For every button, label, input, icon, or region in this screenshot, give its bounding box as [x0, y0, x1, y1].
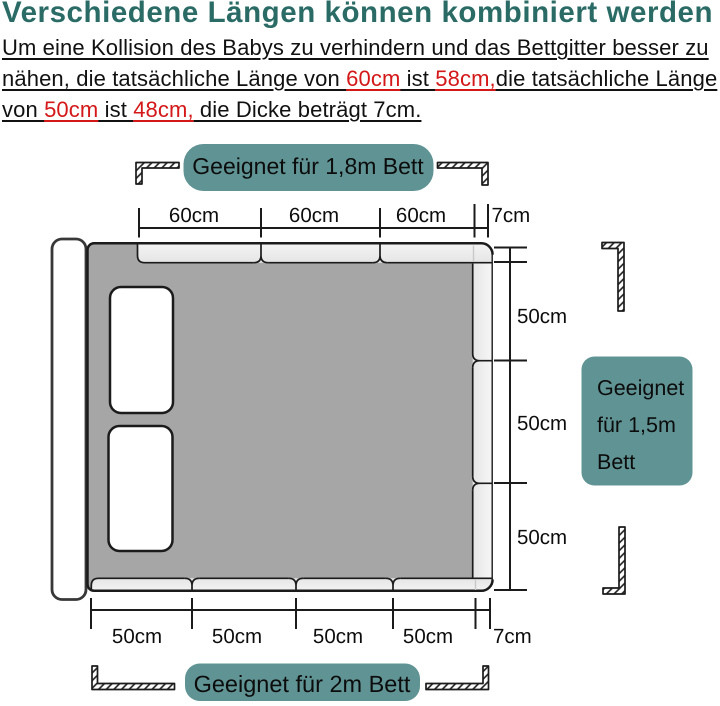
svg-text:50cm: 50cm	[212, 625, 262, 648]
svg-text:50cm: 50cm	[112, 625, 162, 648]
svg-text:50cm: 50cm	[517, 412, 567, 435]
svg-text:7cm: 7cm	[492, 204, 531, 227]
svg-text:60cm: 60cm	[169, 204, 219, 227]
svg-text:50cm: 50cm	[403, 625, 453, 648]
svg-text:Geeignet für 2m Bett: Geeignet für 2m Bett	[194, 671, 411, 697]
svg-text:60cm: 60cm	[396, 204, 446, 227]
svg-text:50cm: 50cm	[313, 625, 363, 648]
svg-text:Geeignet: Geeignet	[597, 376, 684, 400]
svg-text:50cm: 50cm	[517, 526, 567, 549]
svg-text:Bett: Bett	[597, 450, 635, 474]
svg-text:für 1,5m: für 1,5m	[597, 413, 676, 437]
svg-text:Geeignet für 1,8m Bett: Geeignet für 1,8m Bett	[192, 153, 424, 179]
svg-text:60cm: 60cm	[289, 204, 339, 227]
svg-text:50cm: 50cm	[517, 305, 567, 328]
svg-text:7cm: 7cm	[493, 625, 532, 648]
